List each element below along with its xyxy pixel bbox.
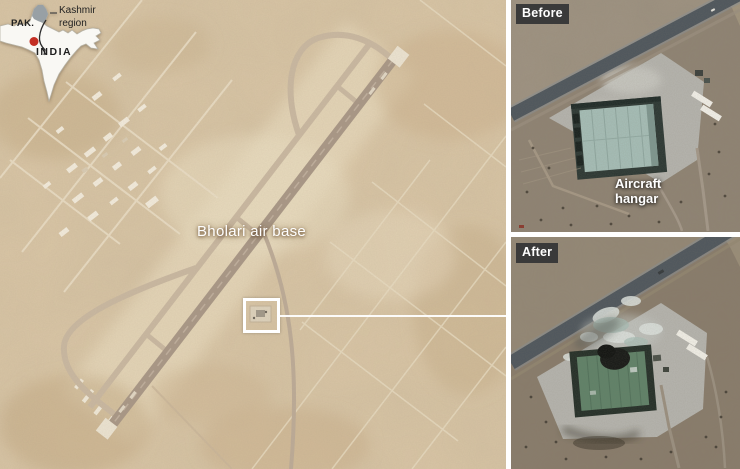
satellite-graphic: PAK. Kashmir region INDIA Bholari air ba… xyxy=(0,0,740,469)
after-satellite-image xyxy=(511,237,740,469)
india-label: INDIA xyxy=(36,46,72,58)
after-badge: After xyxy=(516,243,558,263)
photo-grain xyxy=(511,237,740,469)
after-panel: After xyxy=(511,237,740,469)
aircraft-hangar-label: Aircraft hangar xyxy=(615,177,679,207)
airbase-panel: PAK. Kashmir region INDIA Bholari air ba… xyxy=(0,0,506,469)
pakistan-label: PAK. xyxy=(11,18,34,29)
kashmir-region-label: Kashmir region xyxy=(59,5,111,30)
airbase-label: Bholari air base xyxy=(197,223,306,240)
connector-line xyxy=(279,315,506,317)
hangar-highlight-box xyxy=(243,298,280,333)
before-badge: Before xyxy=(516,4,569,24)
before-panel: Before Aircraft hangar xyxy=(511,0,740,232)
india-locator-map: PAK. Kashmir region INDIA xyxy=(0,0,112,110)
bholari-location-marker xyxy=(30,37,39,46)
